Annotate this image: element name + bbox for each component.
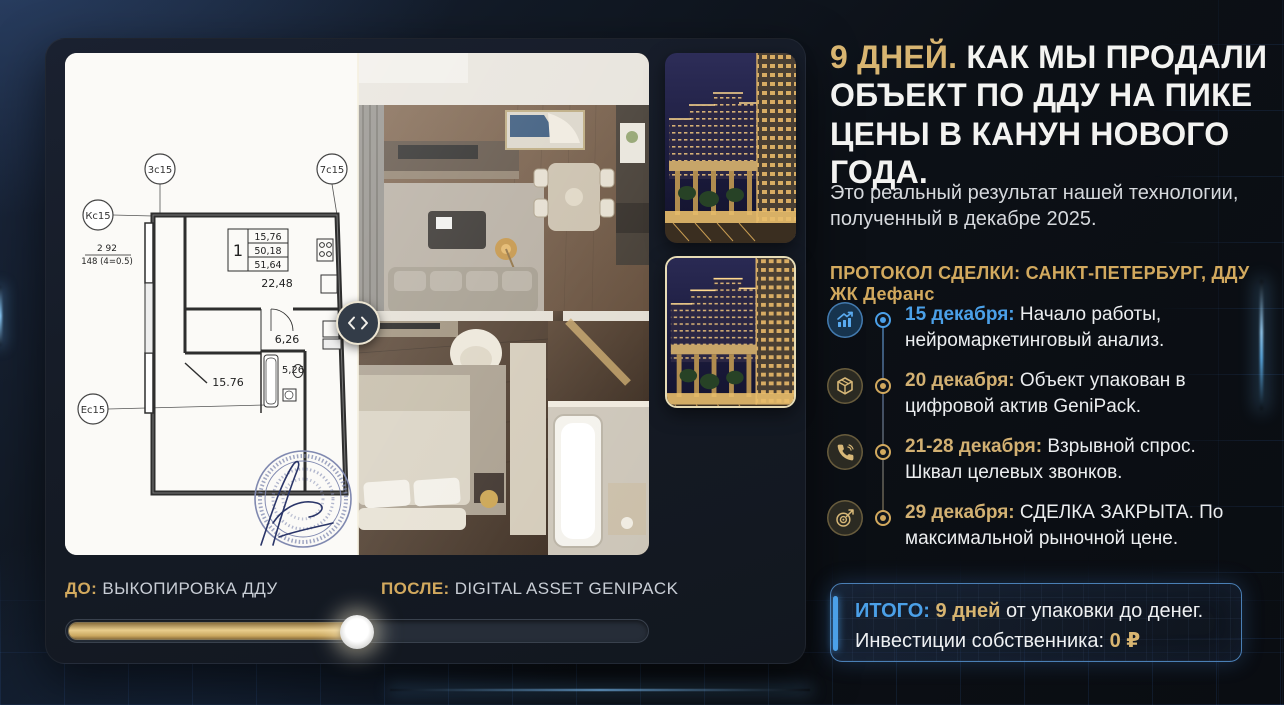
- room-area: 15.76: [212, 376, 244, 389]
- chevrons-horizontal-icon: [347, 316, 369, 330]
- after-caption-text: DIGITAL ASSET GENIPACK: [455, 579, 679, 598]
- timeline-date: 29 декабря:: [905, 502, 1015, 523]
- after-caption-prefix: ПОСЛЕ:: [381, 579, 450, 598]
- summary-box: ИТОГО: 9 дней от упаковки до денег. Инве…: [830, 583, 1242, 662]
- axis-label: Кс15: [85, 211, 110, 222]
- timeline-text: 15 декабря: Начало работы, нейромаркетин…: [905, 302, 1255, 354]
- comparison-slider-thumb[interactable]: [340, 615, 374, 649]
- after-image-render[interactable]: [358, 53, 649, 555]
- timeline-bullet: [875, 378, 891, 394]
- axis-label: 3с15: [148, 165, 173, 176]
- before-caption-text: ВЫКОПИРОВКА ДДУ: [102, 579, 277, 598]
- timeline-date: 20 декабря:: [905, 370, 1015, 391]
- timeline-item-4: 29 декабря: СДЕЛКА ЗАКРЫТА. По максималь…: [827, 500, 1257, 552]
- timeline-bullet: [875, 444, 891, 460]
- timeline-bullet: [875, 510, 891, 526]
- timeline-text: 29 декабря: СДЕЛКА ЗАКРЫТА. По максималь…: [905, 500, 1255, 552]
- bath-area: 5,26: [282, 365, 304, 376]
- axis-label: Ес15: [81, 405, 106, 416]
- summary-rest: от упаковки до денег.: [1000, 600, 1203, 622]
- summary-line-2: Инвестиции собственника: 0 ₽: [855, 626, 1203, 656]
- hall-area: 6,26: [275, 333, 300, 346]
- area-value: 15,76: [254, 232, 281, 243]
- summary-invest-label: Инвестиции собственника:: [855, 630, 1110, 652]
- summary-days: 9 дней: [930, 600, 1000, 622]
- glow-accent-left: [0, 286, 2, 346]
- timeline-item-2: 20 декабря: Объект упакован в цифровой а…: [827, 368, 1257, 420]
- summary-text: ИТОГО: 9 дней от упаковки до денег. Инве…: [855, 596, 1203, 656]
- unit-number: 1: [233, 241, 243, 260]
- summary-invest-value: 0 ₽: [1110, 630, 1141, 652]
- area-value: 51,64: [254, 260, 281, 271]
- timeline-item-1: 15 декабря: Начало работы, нейромаркетин…: [827, 302, 1257, 354]
- living-area: 22,48: [261, 277, 293, 290]
- timeline-date: 15 декабря:: [905, 304, 1015, 325]
- summary-line-1: ИТОГО: 9 дней от упаковки до денег.: [855, 596, 1203, 626]
- before-caption: ДО: ВЫКОПИРОВКА ДДУ: [65, 579, 278, 599]
- dim-line1: 2 92: [97, 244, 117, 254]
- phone-icon: [827, 434, 863, 470]
- protocol-heading: ПРОТОКОЛ СДЕЛКИ: САНКТ-ПЕТЕРБУРГ, ДДУ ЖК…: [830, 263, 1282, 305]
- before-caption-prefix: ДО:: [65, 579, 97, 598]
- comparison-card: 3с15 7с15 Кс15 Ес15: [45, 38, 806, 664]
- page-title: 9 ДНЕЙ. КАК МЫ ПРОДАЛИ ОБЪЕКТ ПО ДДУ НА …: [830, 38, 1282, 192]
- summary-accent-bar: [833, 596, 838, 651]
- timeline-date: 21-28 декабря:: [905, 436, 1042, 457]
- summary-label: ИТОГО:: [855, 600, 930, 622]
- subtitle: Это реальный результат нашей технологии,…: [830, 180, 1270, 233]
- comparison-drag-handle[interactable]: [336, 301, 380, 345]
- thumbnail-building-photo-1[interactable]: [665, 53, 796, 243]
- chart-up-icon: [827, 302, 863, 338]
- timeline-text: 20 декабря: Объект упакован в цифровой а…: [905, 368, 1255, 420]
- axis-label: 7с15: [320, 165, 345, 176]
- dim-line2: 148 (4=0.5): [81, 257, 133, 267]
- thumbnail-building-photo-2-selected[interactable]: [665, 256, 796, 408]
- area-value: 50,18: [254, 246, 281, 257]
- deal-timeline: 15 декабря: Начало работы, нейромаркетин…: [827, 302, 1257, 566]
- timeline-item-3: 21-28 декабря: Взрывной спрос. Шквал цел…: [827, 434, 1257, 486]
- target-icon: [827, 500, 863, 536]
- comparison-slider-track[interactable]: [65, 619, 649, 643]
- timeline-bullet: [875, 312, 891, 328]
- package-icon: [827, 368, 863, 404]
- before-image-floorplan[interactable]: 3с15 7с15 Кс15 Ес15: [65, 53, 358, 555]
- landing-slide: 3с15 7с15 Кс15 Ес15: [0, 0, 1284, 705]
- comparison-slider-fill: [69, 623, 354, 639]
- timeline-text: 21-28 декабря: Взрывной спрос. Шквал цел…: [905, 434, 1255, 486]
- page-title-accent: 9 ДНЕЙ.: [830, 39, 957, 75]
- after-caption: ПОСЛЕ: DIGITAL ASSET GENIPACK: [381, 579, 678, 599]
- glow-accent-bottom: [390, 689, 810, 691]
